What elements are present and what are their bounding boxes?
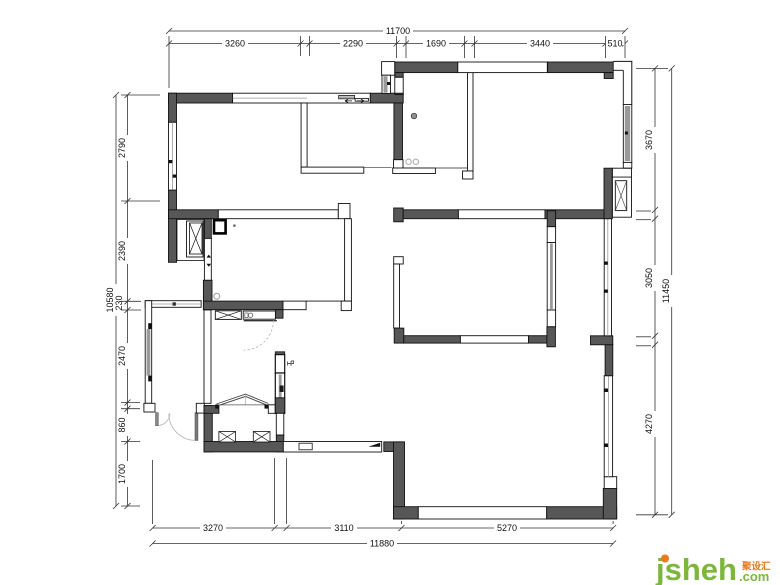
svg-text:3440: 3440	[530, 39, 550, 49]
svg-text:11880: 11880	[370, 539, 394, 549]
svg-text:3270: 3270	[203, 523, 223, 533]
svg-text:230: 230	[114, 295, 124, 310]
svg-text:11450: 11450	[661, 279, 671, 303]
svg-text:1700: 1700	[117, 464, 127, 484]
svg-text:860: 860	[117, 417, 127, 432]
svg-text:5270: 5270	[497, 523, 517, 533]
svg-text:11700: 11700	[386, 26, 410, 36]
svg-text:3670: 3670	[644, 130, 654, 150]
svg-text:聚设汇: 聚设汇	[741, 561, 771, 573]
svg-text:3050: 3050	[644, 268, 654, 288]
svg-text:2790: 2790	[117, 138, 127, 158]
svg-text:3110: 3110	[334, 523, 353, 533]
svg-text:4270: 4270	[644, 414, 654, 434]
svg-text:2390: 2390	[117, 241, 127, 261]
svg-text:3260: 3260	[225, 39, 245, 49]
svg-text:1690: 1690	[426, 39, 446, 49]
svg-text:510: 510	[607, 39, 622, 49]
svg-text:2290: 2290	[343, 39, 363, 49]
svg-text:2470: 2470	[117, 346, 127, 366]
